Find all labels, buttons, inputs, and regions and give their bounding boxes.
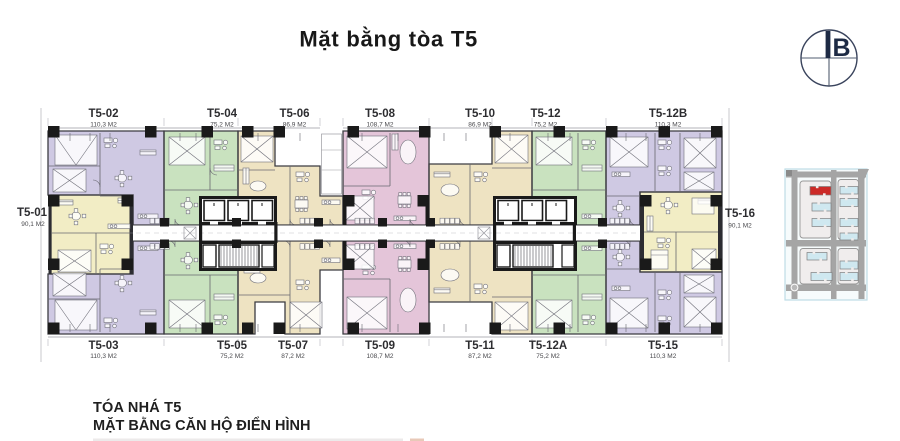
svg-text:T5-01: T5-01 [17, 207, 48, 219]
svg-text:75,2 M2: 75,2 M2 [220, 353, 244, 360]
svg-text:T5-04: T5-04 [207, 108, 238, 120]
svg-text:MẶT BẰNG CĂN HỘ ĐIỂN HÌNH: MẶT BẰNG CĂN HỘ ĐIỂN HÌNH [93, 416, 311, 434]
svg-text:75,2 M2: 75,2 M2 [210, 122, 234, 129]
svg-text:T5-06: T5-06 [279, 108, 309, 120]
svg-text:T5-08: T5-08 [365, 108, 396, 120]
svg-text:B: B [833, 34, 851, 62]
svg-text:87,2 M2: 87,2 M2 [468, 353, 492, 360]
svg-text:86,9 M2: 86,9 M2 [283, 122, 307, 129]
svg-text:108,7 M2: 108,7 M2 [366, 122, 393, 129]
svg-text:T5-09: T5-09 [365, 340, 395, 352]
svg-text:110,3 M2: 110,3 M2 [655, 122, 682, 129]
svg-text:T5-16: T5-16 [725, 208, 755, 220]
svg-text:86,9 M2: 86,9 M2 [468, 122, 492, 129]
svg-text:T5-12A: T5-12A [529, 340, 567, 352]
svg-text:110,3 M2: 110,3 M2 [90, 353, 117, 360]
svg-text:T5-15: T5-15 [648, 340, 679, 352]
svg-text:90,1 M2: 90,1 M2 [21, 221, 45, 228]
svg-text:T5-11: T5-11 [465, 340, 495, 352]
svg-text:T5-07: T5-07 [278, 340, 308, 352]
svg-text:87,2 M2: 87,2 M2 [281, 353, 305, 360]
svg-text:75,2 M2: 75,2 M2 [536, 353, 560, 360]
svg-text:Mặt bằng tòa T5: Mặt bằng tòa T5 [299, 26, 478, 51]
svg-text:T5-12B: T5-12B [649, 108, 687, 120]
svg-text:108,7 M2: 108,7 M2 [366, 353, 393, 360]
svg-text:T5-02: T5-02 [88, 108, 118, 120]
svg-text:T5-03: T5-03 [88, 340, 118, 352]
svg-text:110,3 M2: 110,3 M2 [90, 122, 117, 129]
svg-text:TÓA NHÁ T5: TÓA NHÁ T5 [93, 398, 181, 416]
svg-text:T5-12: T5-12 [530, 108, 560, 120]
svg-text:T5-05: T5-05 [217, 340, 248, 352]
svg-text:110,3 M2: 110,3 M2 [650, 353, 677, 360]
svg-text:90,1 M2: 90,1 M2 [728, 223, 752, 230]
svg-text:75,2 M2: 75,2 M2 [534, 122, 558, 129]
svg-text:T5-10: T5-10 [465, 108, 495, 120]
